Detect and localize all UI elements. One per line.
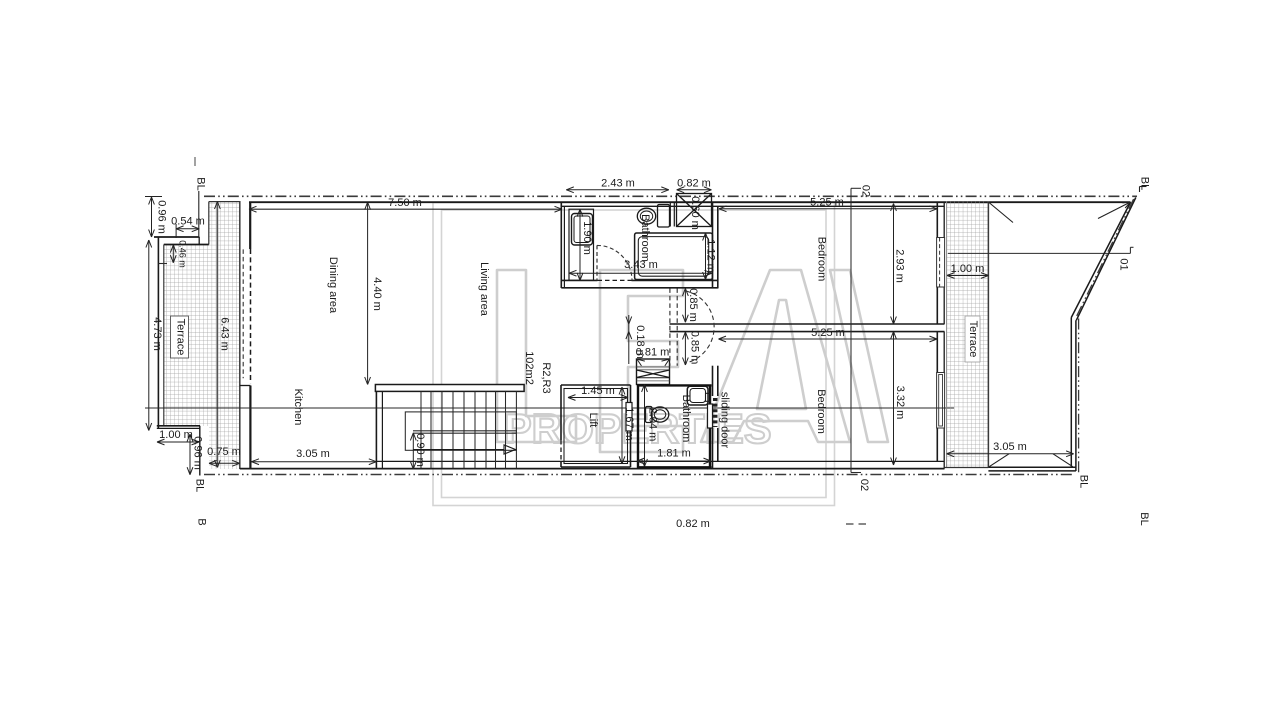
svg-text:2.43 m: 2.43 m — [601, 178, 635, 190]
svg-text:0.82 m: 0.82 m — [677, 178, 711, 190]
svg-text:Lift: Lift — [587, 413, 599, 428]
svg-text:1.90 m: 1.90 m — [581, 221, 593, 255]
svg-text:B: B — [196, 518, 208, 525]
svg-text:1.45 m: 1.45 m — [581, 385, 615, 397]
svg-text:0.90 m: 0.90 m — [414, 433, 426, 467]
svg-text:4.40 m: 4.40 m — [371, 277, 383, 311]
svg-text:0.85 m: 0.85 m — [687, 288, 699, 322]
svg-text:Dining area: Dining area — [327, 257, 339, 314]
svg-text:3.05 m: 3.05 m — [296, 448, 330, 460]
svg-text:R2,R3: R2,R3 — [540, 362, 552, 393]
svg-text:BL: BL — [1139, 177, 1151, 190]
svg-text:5.25 m: 5.25 m — [811, 327, 845, 339]
svg-text:6.43 m: 6.43 m — [219, 317, 231, 351]
svg-text:1.67 m: 1.67 m — [623, 407, 635, 441]
svg-text:2.93 m: 2.93 m — [894, 249, 906, 283]
svg-text:Terrace: Terrace — [175, 319, 187, 356]
svg-text:Bedroom: Bedroom — [815, 389, 827, 434]
svg-text:0.82 m: 0.82 m — [676, 518, 710, 530]
svg-text:sliding door: sliding door — [719, 392, 731, 449]
svg-text:Kitchen: Kitchen — [292, 389, 304, 426]
svg-text:3.43 m: 3.43 m — [624, 259, 658, 271]
svg-text:102m2: 102m2 — [523, 351, 535, 385]
svg-text:3.05 m: 3.05 m — [993, 441, 1027, 453]
svg-text:0.96 m: 0.96 m — [192, 436, 204, 470]
svg-text:0.18 m: 0.18 m — [634, 325, 646, 359]
svg-text:Bedroom: Bedroom — [816, 237, 828, 282]
svg-text:5.25 m: 5.25 m — [810, 197, 844, 209]
svg-text:1.12 m: 1.12 m — [705, 239, 717, 273]
svg-text:0.96 m: 0.96 m — [156, 200, 168, 234]
svg-text:0.75 m: 0.75 m — [207, 446, 241, 458]
svg-text:01: 01 — [1118, 258, 1130, 270]
svg-text:BL: BL — [1078, 475, 1090, 488]
svg-text:Living area: Living area — [478, 262, 490, 317]
svg-text:BL: BL — [194, 479, 206, 492]
svg-text:1.00 m: 1.00 m — [951, 263, 985, 275]
svg-text:3.32 m: 3.32 m — [894, 386, 906, 420]
svg-text:Bathroom: Bathroom — [680, 395, 692, 443]
svg-text:02: 02 — [860, 185, 872, 197]
svg-text:0.54 m: 0.54 m — [171, 216, 205, 228]
svg-text:0.85 m: 0.85 m — [689, 331, 701, 365]
svg-text:0.60 m: 0.60 m — [689, 196, 701, 230]
svg-text:02: 02 — [858, 479, 870, 491]
svg-text:Terrace: Terrace — [967, 321, 979, 358]
svg-text:1.81 m: 1.81 m — [657, 448, 691, 460]
svg-text:2.04 m: 2.04 m — [647, 408, 659, 442]
svg-text:0.46 m: 0.46 m — [178, 240, 188, 268]
svg-text:BL: BL — [195, 177, 207, 190]
svg-text:4.73 m: 4.73 m — [151, 317, 163, 351]
svg-text:BL: BL — [1138, 512, 1150, 525]
